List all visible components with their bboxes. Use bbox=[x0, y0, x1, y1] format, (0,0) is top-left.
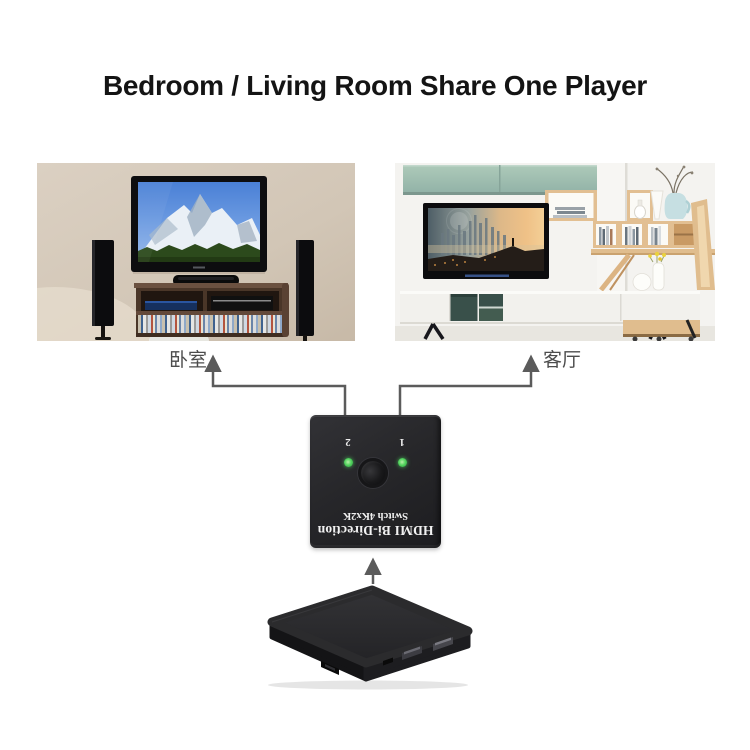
media-player-box bbox=[255, 585, 485, 690]
player-box-graphic bbox=[255, 585, 485, 690]
hdmi-switch-device: 2 1 HDMI Bi-Direction Switch 4Kx2K bbox=[310, 415, 441, 548]
port-1-label: 1 bbox=[392, 436, 412, 448]
port-2-label: 2 bbox=[338, 436, 358, 448]
switch-branding-text: HDMI Bi-Direction Switch 4Kx2K bbox=[310, 499, 441, 539]
bedroom-arrow-icon bbox=[213, 358, 345, 416]
living-room-arrow-icon bbox=[400, 358, 531, 416]
switch-select-button bbox=[358, 458, 388, 488]
port-1-led bbox=[398, 458, 407, 467]
product-infographic: Bedroom / Living Room Share One Player bbox=[0, 0, 750, 750]
brand-line-2: Switch 4Kx2K bbox=[310, 509, 441, 522]
brand-line-1: HDMI Bi-Direction bbox=[310, 522, 441, 539]
port-2-led bbox=[344, 458, 353, 467]
